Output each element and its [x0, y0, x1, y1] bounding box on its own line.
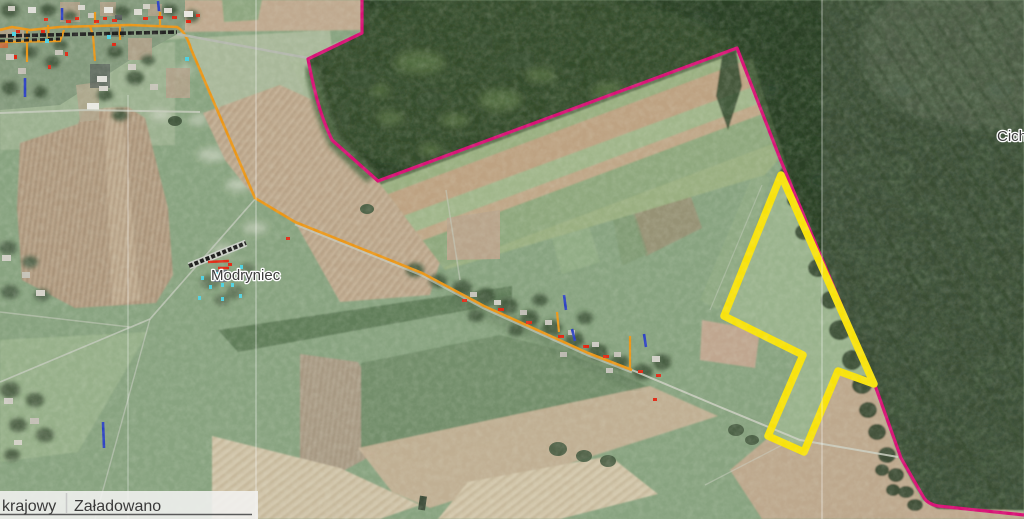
svg-text:Modryniec: Modryniec — [211, 267, 281, 284]
svg-text:Załadowano: Załadowano — [74, 498, 161, 515]
svg-text:Cich: Cich — [997, 128, 1024, 145]
svg-text:krajowy: krajowy — [2, 498, 56, 515]
